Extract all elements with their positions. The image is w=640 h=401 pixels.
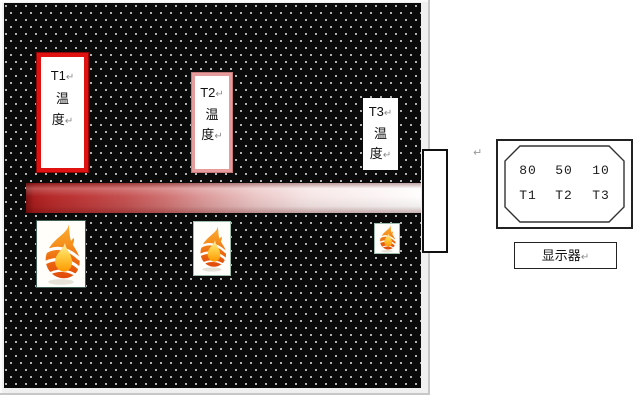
readout-value-t2: 50 [544, 163, 584, 178]
heat-gradient-rod[interactable] [26, 183, 421, 213]
sensor-t3-temp-char2: 度↵ [363, 144, 398, 166]
flame-large[interactable] [36, 220, 86, 288]
sensor-box-t2[interactable]: T2↵ 温 度↵ [192, 73, 232, 172]
line-break-mark: ↵ [65, 116, 73, 127]
line-break-mark: ↵ [383, 150, 391, 161]
flame-icon [375, 224, 399, 253]
flame-icon [37, 221, 85, 287]
wall-connector-block[interactable] [422, 149, 448, 253]
flame-small[interactable] [374, 223, 400, 254]
line-break-mark: ↵ [473, 146, 482, 159]
readout-value-t3: 10 [581, 163, 621, 178]
line-break-mark: ↵ [66, 72, 74, 83]
display-caption-text: 显示器 [542, 248, 581, 263]
flame-icon [194, 222, 230, 275]
display-caption-box[interactable]: 显示器↵ [514, 242, 617, 269]
sensor-t2-name: T2↵ [195, 83, 229, 105]
readout-channel-t2: T2 [544, 188, 584, 203]
sensor-t1-name: T1↵ [41, 65, 84, 88]
line-break-mark: ↵ [214, 131, 222, 142]
temperature-display-panel[interactable]: 80 50 10 T1 T2 T3 [496, 139, 633, 229]
readout-value-t1: 80 [508, 163, 548, 178]
display-bezel-octagon [504, 145, 625, 223]
readout-channel-t3: T3 [581, 188, 621, 203]
sensor-t1-temp-char2: 度↵ [41, 109, 84, 132]
sensor-t3-temp-char1: 温 [363, 124, 398, 144]
readout-channel-t1: T1 [508, 188, 548, 203]
line-break-mark: ↵ [581, 252, 589, 263]
sensor-box-t1[interactable]: T1↵ 温 度↵ [37, 53, 88, 172]
sensor-t3-name: T3↵ [363, 102, 398, 124]
sensor-t2-temp-char1: 温 [195, 105, 229, 125]
sensor-box-t3[interactable]: T3↵ 温 度↵ [363, 98, 398, 170]
heat-conduction-diagram: T1↵ 温 度↵ T2↵ 温 度↵ T3↵ 温 度↵ ↵ 80 50 10 T1… [0, 0, 640, 401]
line-break-mark: ↵ [384, 108, 392, 119]
sensor-t1-temp-char1: 温 [41, 88, 84, 109]
sensor-t2-temp-char2: 度↵ [195, 125, 229, 147]
flame-medium[interactable] [193, 221, 231, 276]
line-break-mark: ↵ [215, 89, 223, 100]
